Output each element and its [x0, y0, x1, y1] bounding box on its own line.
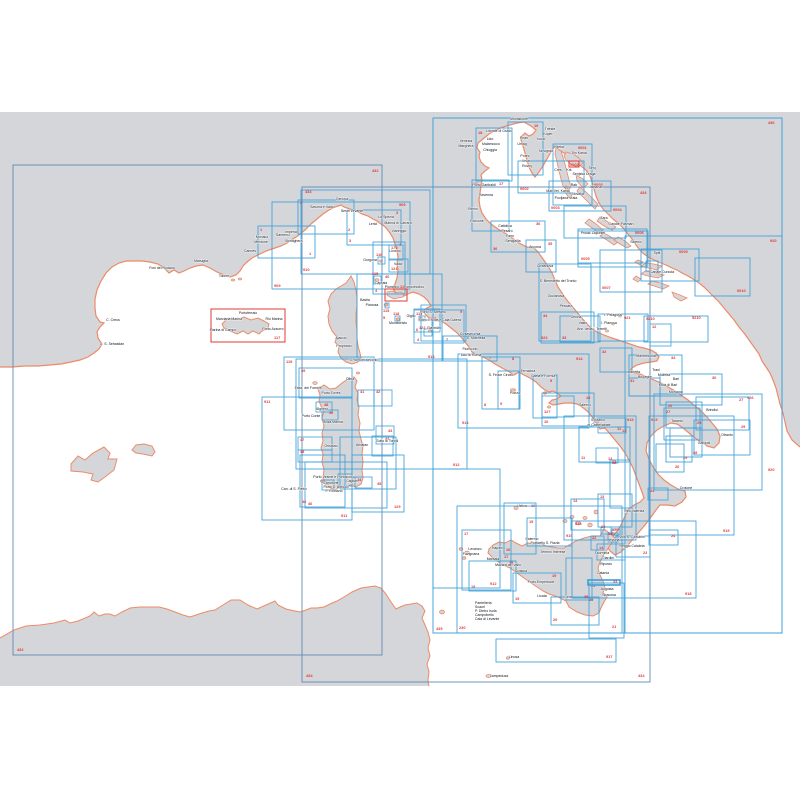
svg-text:Rab: Rab [571, 183, 577, 187]
svg-text:Reggio Calabria: Reggio Calabria [619, 544, 644, 548]
svg-text:Porto Vesme e Portoscuso: Porto Vesme e Portoscuso [313, 475, 354, 479]
svg-text:Fano: Fano [506, 234, 514, 238]
svg-text:Porticello S. Flavia: Porticello S. Flavia [531, 541, 560, 545]
svg-text:Krk: Krk [566, 168, 572, 172]
svg-text:Lido di Roma: Lido di Roma [461, 353, 482, 357]
svg-text:Terracina: Terracina [521, 369, 535, 373]
svg-text:Trapani: Trapani [491, 546, 503, 550]
svg-text:Gela: Gela [564, 595, 571, 599]
svg-text:Mali Vel. Kanal: Mali Vel. Kanal [546, 189, 569, 193]
svg-text:Monopoli: Monopoli [669, 390, 683, 394]
svg-text:Ravenna: Ravenna [479, 193, 493, 197]
svg-text:127: 127 [544, 409, 551, 414]
svg-text:Marciana Marina: Marciana Marina [216, 317, 242, 321]
svg-text:230: 230 [459, 625, 466, 630]
svg-text:Crotone: Crotone [680, 486, 693, 490]
svg-text:919: 919 [651, 417, 658, 422]
svg-text:Montecristo: Montecristo [389, 321, 407, 325]
svg-text:0001: 0001 [578, 145, 587, 150]
svg-text:Porec: Porec [520, 154, 529, 158]
svg-text:Venezia: Venezia [460, 139, 473, 143]
svg-text:Vibo Valentia: Vibo Valentia [624, 509, 644, 513]
svg-text:17: 17 [464, 531, 468, 536]
svg-text:Lampedusa: Lampedusa [490, 674, 508, 678]
svg-text:Fiumicino: Fiumicino [463, 347, 478, 351]
svg-text:P. Romano: P. Romano [325, 489, 342, 493]
svg-text:Giardini: Giardini [602, 556, 614, 560]
svg-text:910: 910 [303, 267, 310, 272]
svg-text:Bordighera: Bordighera [285, 239, 302, 243]
svg-text:Cres: Cres [554, 168, 562, 172]
svg-text:Porto Empedocle: Porto Empedocle [528, 580, 555, 584]
svg-text:918: 918 [685, 591, 692, 596]
svg-text:G. di Portovecchio: G. di Portovecchio [350, 358, 379, 362]
svg-text:Pass. dei Fornelli: Pass. dei Fornelli [295, 386, 322, 390]
svg-text:Bisceglie: Bisceglie [638, 375, 652, 379]
svg-text:Mola di Bari: Mola di Bari [659, 383, 678, 387]
svg-text:Brindisi: Brindisi [706, 408, 718, 412]
svg-text:Genova: Genova [336, 197, 348, 201]
svg-text:40: 40 [385, 274, 389, 279]
svg-text:Rio Marina: Rio Marina [266, 317, 283, 321]
svg-text:Riccione: Riccione [470, 219, 483, 223]
svg-text:Can. di S. Pietro: Can. di S. Pietro [281, 487, 307, 491]
svg-text:Novigrad: Novigrad [539, 149, 553, 153]
svg-text:Pesaro: Pesaro [501, 229, 512, 233]
svg-text:Foci del Rodano: Foci del Rodano [149, 266, 175, 270]
svg-text:Rimini: Rimini [468, 207, 478, 211]
svg-text:Otranto: Otranto [721, 433, 733, 437]
svg-text:C. S. Sebastian: C. S. Sebastian [100, 342, 124, 346]
svg-text:Povljana Vrata: Povljana Vrata [555, 196, 578, 200]
svg-text:432: 432 [17, 647, 24, 652]
svg-text:I. Pianosa: I. Pianosa [601, 321, 617, 325]
svg-text:435: 435 [436, 626, 443, 631]
svg-text:Olbia: Olbia [346, 377, 354, 381]
svg-text:I. Pelagosa: I. Pelagosa [604, 313, 622, 317]
svg-text:40: 40 [329, 410, 333, 415]
svg-text:Ponza: Ponza [510, 391, 520, 395]
svg-text:C. Creus: C. Creus [106, 318, 120, 322]
svg-text:Canale Pasman: Canale Pasman [609, 222, 634, 226]
svg-text:Pescara: Pescara [560, 304, 573, 308]
svg-text:Taranto: Taranto [671, 419, 683, 423]
svg-text:912: 912 [453, 462, 460, 467]
svg-text:Levanzo: Levanzo [468, 547, 481, 551]
svg-text:Portovecchio: Portovecchio [404, 285, 424, 289]
svg-text:Monaco: Monaco [256, 235, 269, 239]
svg-text:909: 909 [399, 202, 406, 207]
svg-text:27: 27 [666, 409, 670, 414]
svg-text:di Castellabate: di Castellabate [587, 423, 610, 427]
svg-text:Malamocco: Malamocco [482, 142, 500, 146]
svg-text:Porto Garibaldi: Porto Garibaldi [472, 183, 496, 187]
svg-text:Piran: Piran [520, 136, 528, 140]
svg-text:Jablanac: Jablanac [589, 185, 603, 189]
svg-text:Porto Azzurro: Porto Azzurro [262, 327, 283, 331]
svg-text:0003: 0003 [551, 205, 560, 210]
svg-text:Senj: Senj [588, 166, 595, 170]
svg-text:Marsala: Marsala [487, 557, 500, 561]
svg-text:Anc. della I. Tremiti: Anc. della I. Tremiti [577, 327, 607, 331]
svg-text:Ortona: Ortona [571, 315, 582, 319]
svg-text:Linosa: Linosa [509, 655, 519, 659]
svg-text:Livorno: Livorno [389, 249, 401, 253]
svg-text:Imperia: Imperia [285, 230, 297, 234]
svg-text:Viareggio: Viareggio [392, 229, 407, 233]
svg-text:920: 920 [770, 238, 777, 243]
svg-text:0002: 0002 [570, 162, 579, 167]
svg-text:Vada: Vada [394, 262, 402, 266]
svg-text:Giglio: Giglio [407, 314, 416, 318]
svg-text:Prolaz Zapuntel: Prolaz Zapuntel [581, 231, 606, 235]
svg-text:Favignana: Favignana [463, 552, 479, 556]
svg-text:Pianosa: Pianosa [366, 303, 379, 307]
svg-text:Cagliari: Cagliari [346, 479, 358, 483]
svg-text:Chioggia: Chioggia [483, 148, 497, 152]
svg-text:Barletta: Barletta [628, 370, 640, 374]
svg-text:0005: 0005 [581, 256, 590, 261]
svg-text:Ancona: Ancona [529, 245, 541, 249]
svg-text:918: 918 [575, 521, 582, 526]
svg-text:Trani: Trani [652, 368, 660, 372]
svg-text:Split: Split [654, 251, 661, 255]
svg-text:Vasto: Vasto [579, 321, 588, 325]
svg-text:115: 115 [372, 271, 379, 276]
svg-text:913: 913 [428, 354, 435, 359]
svg-text:Senjska Draga: Senjska Draga [573, 172, 596, 176]
svg-text:Lido: Lido [487, 137, 494, 141]
svg-text:Alghero: Alghero [316, 407, 328, 411]
svg-text:434: 434 [640, 190, 647, 195]
svg-text:115: 115 [383, 308, 390, 313]
svg-text:20: 20 [553, 617, 557, 622]
svg-text:Giannutri: Giannutri [427, 326, 441, 330]
svg-text:909: 909 [274, 283, 281, 288]
svg-text:10: 10 [586, 395, 590, 400]
svg-text:Riposto: Riposto [600, 562, 612, 566]
svg-text:Mazara del Vallo: Mazara del Vallo [495, 563, 521, 567]
svg-text:434: 434 [638, 673, 645, 678]
svg-text:912: 912 [490, 581, 497, 586]
svg-text:Gorgona: Gorgona [363, 258, 377, 262]
svg-text:434: 434 [306, 673, 313, 678]
svg-text:7: 7 [446, 337, 448, 342]
svg-text:0004: 0004 [613, 207, 622, 212]
svg-text:Molfetta: Molfetta [658, 373, 671, 377]
svg-text:10: 10 [544, 419, 548, 424]
svg-text:Rijeka: Rijeka [554, 145, 564, 149]
svg-text:S. Marco: S. Marco [591, 418, 605, 422]
svg-text:Civitanova: Civitanova [537, 264, 553, 268]
svg-text:911: 911 [264, 399, 271, 404]
svg-text:121: 121 [391, 266, 398, 271]
svg-text:Zara: Zara [600, 216, 607, 220]
svg-text:Gaeta e Formia: Gaeta e Formia [531, 374, 555, 378]
svg-text:Golfo di Tortoli: Golfo di Tortoli [376, 439, 399, 443]
svg-text:S. Marinella: S. Marinella [467, 336, 486, 340]
svg-text:Bari: Bari [673, 377, 679, 381]
svg-text:917: 917 [606, 654, 613, 659]
svg-text:Ustica: Ustica [517, 504, 527, 508]
svg-text:920: 920 [768, 467, 775, 472]
svg-text:Tihi Kanal: Tihi Kanal [571, 151, 587, 155]
svg-text:Marghera: Marghera [459, 144, 474, 148]
svg-text:Sibenic: Sibenic [630, 240, 642, 244]
svg-text:922: 922 [541, 335, 548, 340]
svg-text:Bastia: Bastia [360, 298, 370, 302]
svg-text:Porto Ercole e Cala Galera: Porto Ercole e Cala Galera [419, 318, 461, 322]
svg-text:122: 122 [419, 325, 426, 330]
svg-text:Piombino: Piombino [385, 285, 400, 289]
svg-text:129: 129 [394, 504, 401, 509]
svg-text:921: 921 [624, 315, 631, 320]
svg-text:116: 116 [376, 252, 383, 257]
svg-text:117: 117 [274, 335, 280, 340]
svg-text:Senigallia: Senigallia [505, 239, 520, 243]
svg-text:30: 30 [712, 375, 716, 380]
svg-text:919: 919 [723, 528, 730, 533]
svg-text:Taormina: Taormina [595, 551, 609, 555]
svg-text:5210: 5210 [692, 315, 701, 320]
svg-text:S. Benedetto del Tronto: S. Benedetto del Tronto [540, 279, 577, 283]
svg-text:Sciacca: Sciacca [515, 569, 527, 573]
svg-text:Sestri Levante: Sestri Levante [341, 209, 363, 213]
svg-text:Catania: Catania [597, 571, 609, 575]
svg-text:436: 436 [768, 120, 775, 125]
svg-text:27: 27 [739, 397, 743, 402]
svg-text:5210: 5210 [646, 316, 655, 321]
svg-text:Mentone: Mentone [254, 240, 268, 244]
svg-text:Isola: Isola [537, 137, 544, 141]
svg-text:130: 130 [608, 531, 615, 536]
svg-text:Manfredonia: Manfredonia [636, 354, 656, 358]
svg-text:Salerno: Salerno [579, 403, 591, 407]
svg-text:S. Felice Circeo: S. Felice Circeo [489, 373, 514, 377]
svg-text:17: 17 [499, 181, 503, 186]
svg-text:Licata: Licata [537, 594, 546, 598]
svg-text:Trieste: Trieste [545, 127, 556, 131]
svg-text:Porto S. Stefano: Porto S. Stefano [420, 310, 446, 314]
svg-text:Villa S. Giovanni: Villa S. Giovanni [619, 535, 645, 539]
svg-text:Monfalcone: Monfalcone [510, 117, 528, 121]
svg-text:47: 47 [300, 437, 304, 442]
svg-text:Lerici: Lerici [369, 222, 378, 226]
svg-text:20: 20 [589, 597, 593, 602]
svg-text:Portoferraio: Portoferraio [239, 311, 257, 315]
svg-text:Messina: Messina [606, 538, 619, 542]
svg-text:Marina di Campo: Marina di Campo [210, 328, 237, 332]
svg-text:914: 914 [576, 356, 583, 361]
svg-text:0010: 0010 [737, 288, 746, 293]
svg-text:Umag: Umag [517, 142, 526, 146]
svg-text:Ajaccio: Ajaccio [335, 336, 346, 340]
svg-text:Giulianova: Giulianova [548, 294, 565, 298]
svg-text:915: 915 [627, 417, 634, 422]
svg-text:Porto Conte: Porto Conte [302, 414, 321, 418]
svg-text:Koper: Koper [543, 132, 553, 136]
svg-text:Augusta: Augusta [601, 587, 614, 591]
svg-text:0002: 0002 [520, 186, 529, 191]
svg-text:Cannes: Cannes [244, 249, 256, 253]
svg-text:Oristano: Oristano [324, 444, 337, 448]
svg-text:911: 911 [341, 513, 348, 518]
svg-text:Bosa Marina: Bosa Marina [323, 420, 343, 424]
svg-text:926: 926 [747, 395, 754, 400]
svg-text:Marsiglia: Marsiglia [194, 259, 208, 263]
svg-text:17: 17 [504, 554, 508, 559]
svg-text:La Spezia: La Spezia [378, 215, 394, 219]
svg-text:Porto Torres: Porto Torres [322, 391, 341, 395]
svg-text:Siracusa: Siracusa [602, 593, 616, 597]
svg-text:7: 7 [489, 355, 491, 360]
svg-text:Cattolica: Cattolica [498, 224, 512, 228]
svg-text:0007: 0007 [602, 285, 611, 290]
svg-text:Vrsar: Vrsar [522, 159, 531, 163]
svg-text:Propriano: Propriano [336, 344, 351, 348]
svg-text:Litorale di Grado: Litorale di Grado [486, 129, 512, 133]
svg-text:Marina di Carrara: Marina di Carrara [384, 221, 411, 225]
svg-text:914: 914 [462, 420, 469, 425]
svg-text:Canale Curzola: Canale Curzola [650, 270, 674, 274]
svg-text:Cala di Levante: Cala di Levante [475, 617, 499, 621]
svg-text:Gallipoli: Gallipoli [698, 441, 711, 445]
svg-text:118: 118 [393, 311, 400, 316]
svg-text:Savona e Vado: Savona e Vado [310, 205, 334, 209]
svg-text:Termini Imerese: Termini Imerese [541, 550, 566, 554]
svg-text:Tolone: Tolone [219, 274, 229, 278]
svg-text:20: 20 [668, 403, 672, 408]
svg-text:0009: 0009 [679, 249, 688, 254]
svg-text:119: 119 [286, 359, 293, 364]
svg-text:Arbatax: Arbatax [356, 443, 368, 447]
svg-text:432: 432 [372, 168, 379, 173]
svg-text:Rovinj: Rovinj [522, 164, 532, 168]
